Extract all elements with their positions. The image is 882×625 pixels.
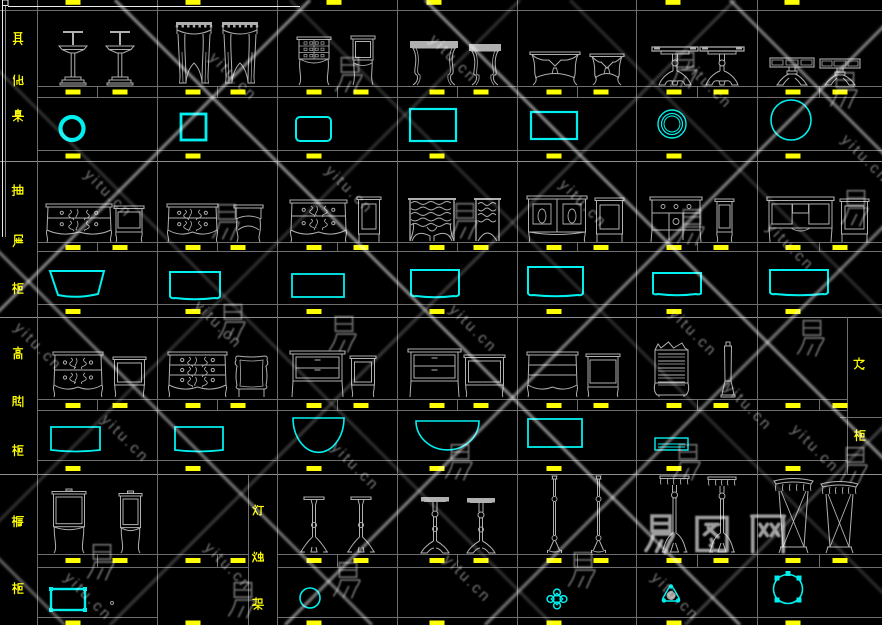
svg-text:yitu.cn: yitu.cn	[838, 131, 882, 186]
svg-text:yitu.cn: yitu.cn	[81, 166, 136, 221]
svg-text:yitu.cn: yitu.cn	[201, 539, 256, 594]
svg-text:yitu.cn: yitu.cn	[426, 31, 481, 86]
svg-text:yitu.cn: yitu.cn	[446, 301, 501, 356]
svg-text:yitu.cn: yitu.cn	[763, 219, 818, 274]
svg-text:yitu.cn: yitu.cn	[666, 305, 721, 360]
svg-text:yitu.cn: yitu.cn	[11, 319, 66, 374]
svg-text:yitu.cn: yitu.cn	[98, 411, 153, 466]
svg-text:yitu.cn: yitu.cn	[721, 379, 776, 434]
